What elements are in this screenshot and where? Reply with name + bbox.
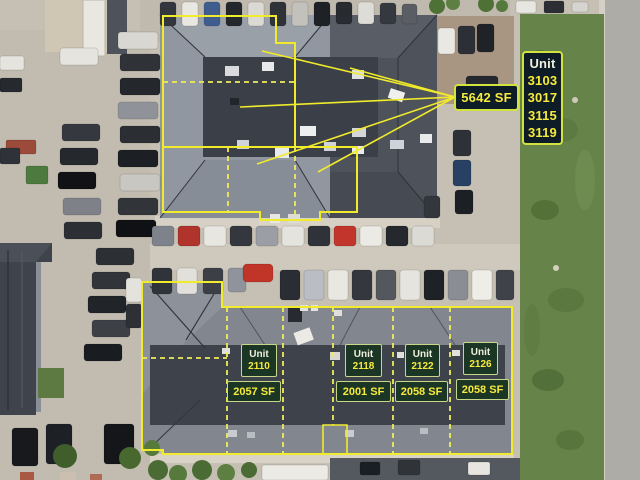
unit-label-2122: Unit 2122 [405,344,440,377]
unit-label-number: 2118 [346,361,381,373]
unit-number: 3017 [528,90,558,105]
unit-label-title: Unit [346,349,381,361]
aerial-photo: 5642 SF Unit 3103 3017 3115 3119 Unit 21… [0,0,640,480]
unit-list-sign: Unit 3103 3017 3115 3119 [522,51,563,145]
unit-label-title: Unit [464,347,497,359]
area-label-2118: 2001 SF [336,381,391,402]
unit-label-number: 2126 [464,359,497,371]
unit-number: 3103 [528,73,558,88]
unit-number: 3115 [528,108,557,123]
unit-number: 3119 [528,125,557,140]
unit-label-title: Unit [242,349,276,361]
unit-list-title: Unit [529,56,555,71]
unit-label-number: 2122 [406,361,439,373]
unit-label-number: 2110 [242,361,276,373]
north-building-roof [160,15,437,223]
area-label-2110: 2057 SF [227,381,281,402]
area-label-2126: 2058 SF [456,379,509,400]
unit-label-title: Unit [406,349,439,361]
total-area-label: 5642 SF [461,90,512,105]
unit-label-2110: Unit 2110 [241,344,277,377]
total-area-sign: 5642 SF [454,84,519,111]
unit-label-2126: Unit 2126 [463,342,498,375]
road [599,0,640,480]
unit-label-2118: Unit 2118 [345,344,382,377]
area-label-2122: 2058 SF [395,381,448,402]
